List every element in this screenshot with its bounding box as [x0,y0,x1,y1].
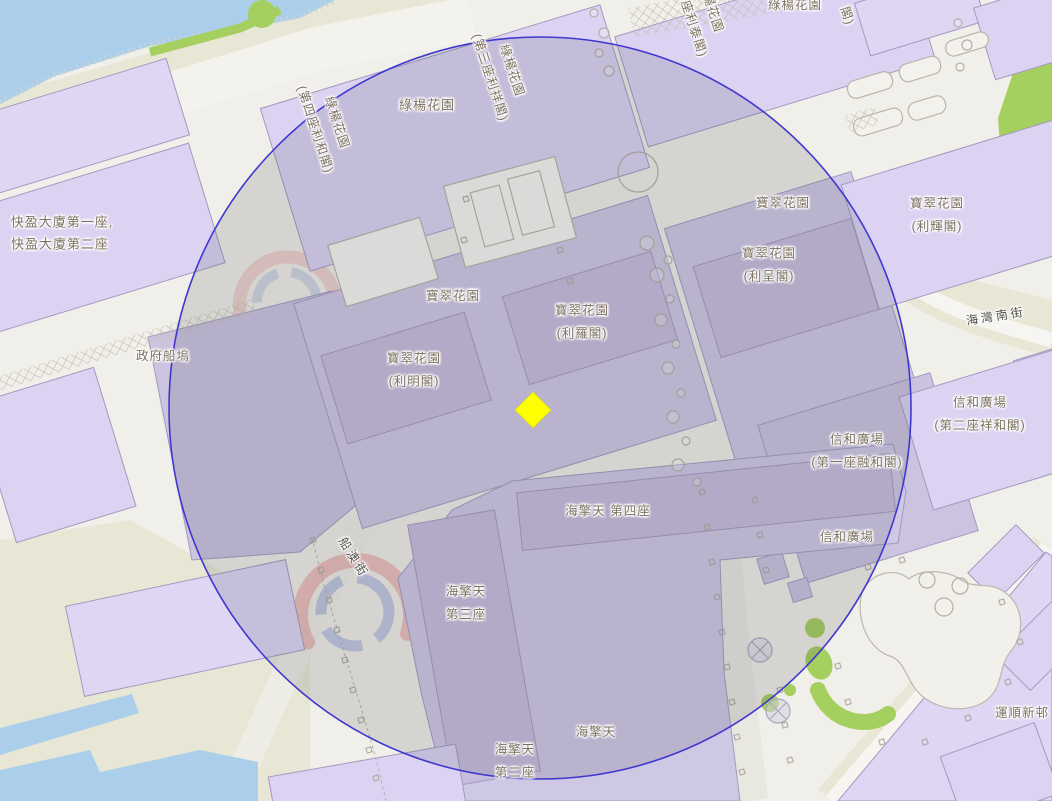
basemap [0,0,1052,801]
map-canvas[interactable]: 綠楊花園綠楊花園 (第四座利和閣)綠楊花園 (第三座利祥閣)綠楊花園 (第一座利… [0,0,1052,801]
